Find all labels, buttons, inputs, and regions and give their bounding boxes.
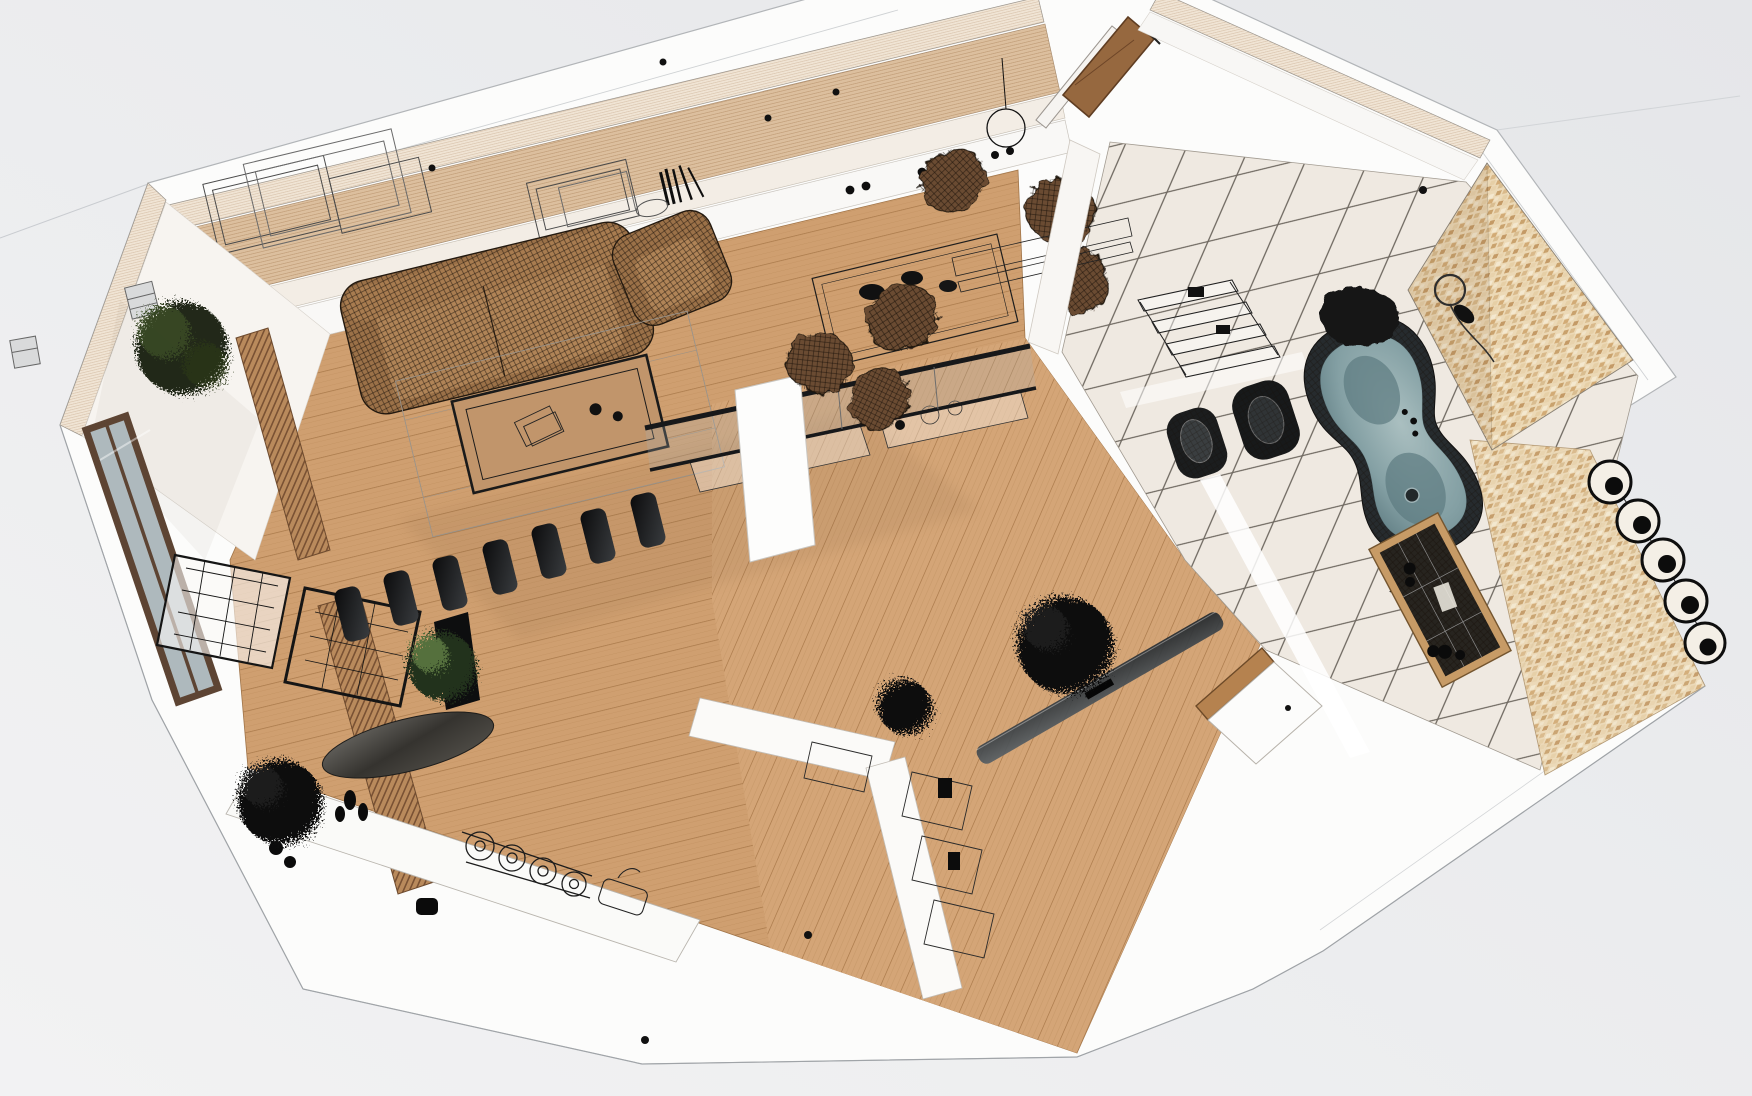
render-canvas (0, 0, 1752, 1096)
kettle (416, 898, 438, 915)
floor-plan-render (0, 0, 1752, 1096)
